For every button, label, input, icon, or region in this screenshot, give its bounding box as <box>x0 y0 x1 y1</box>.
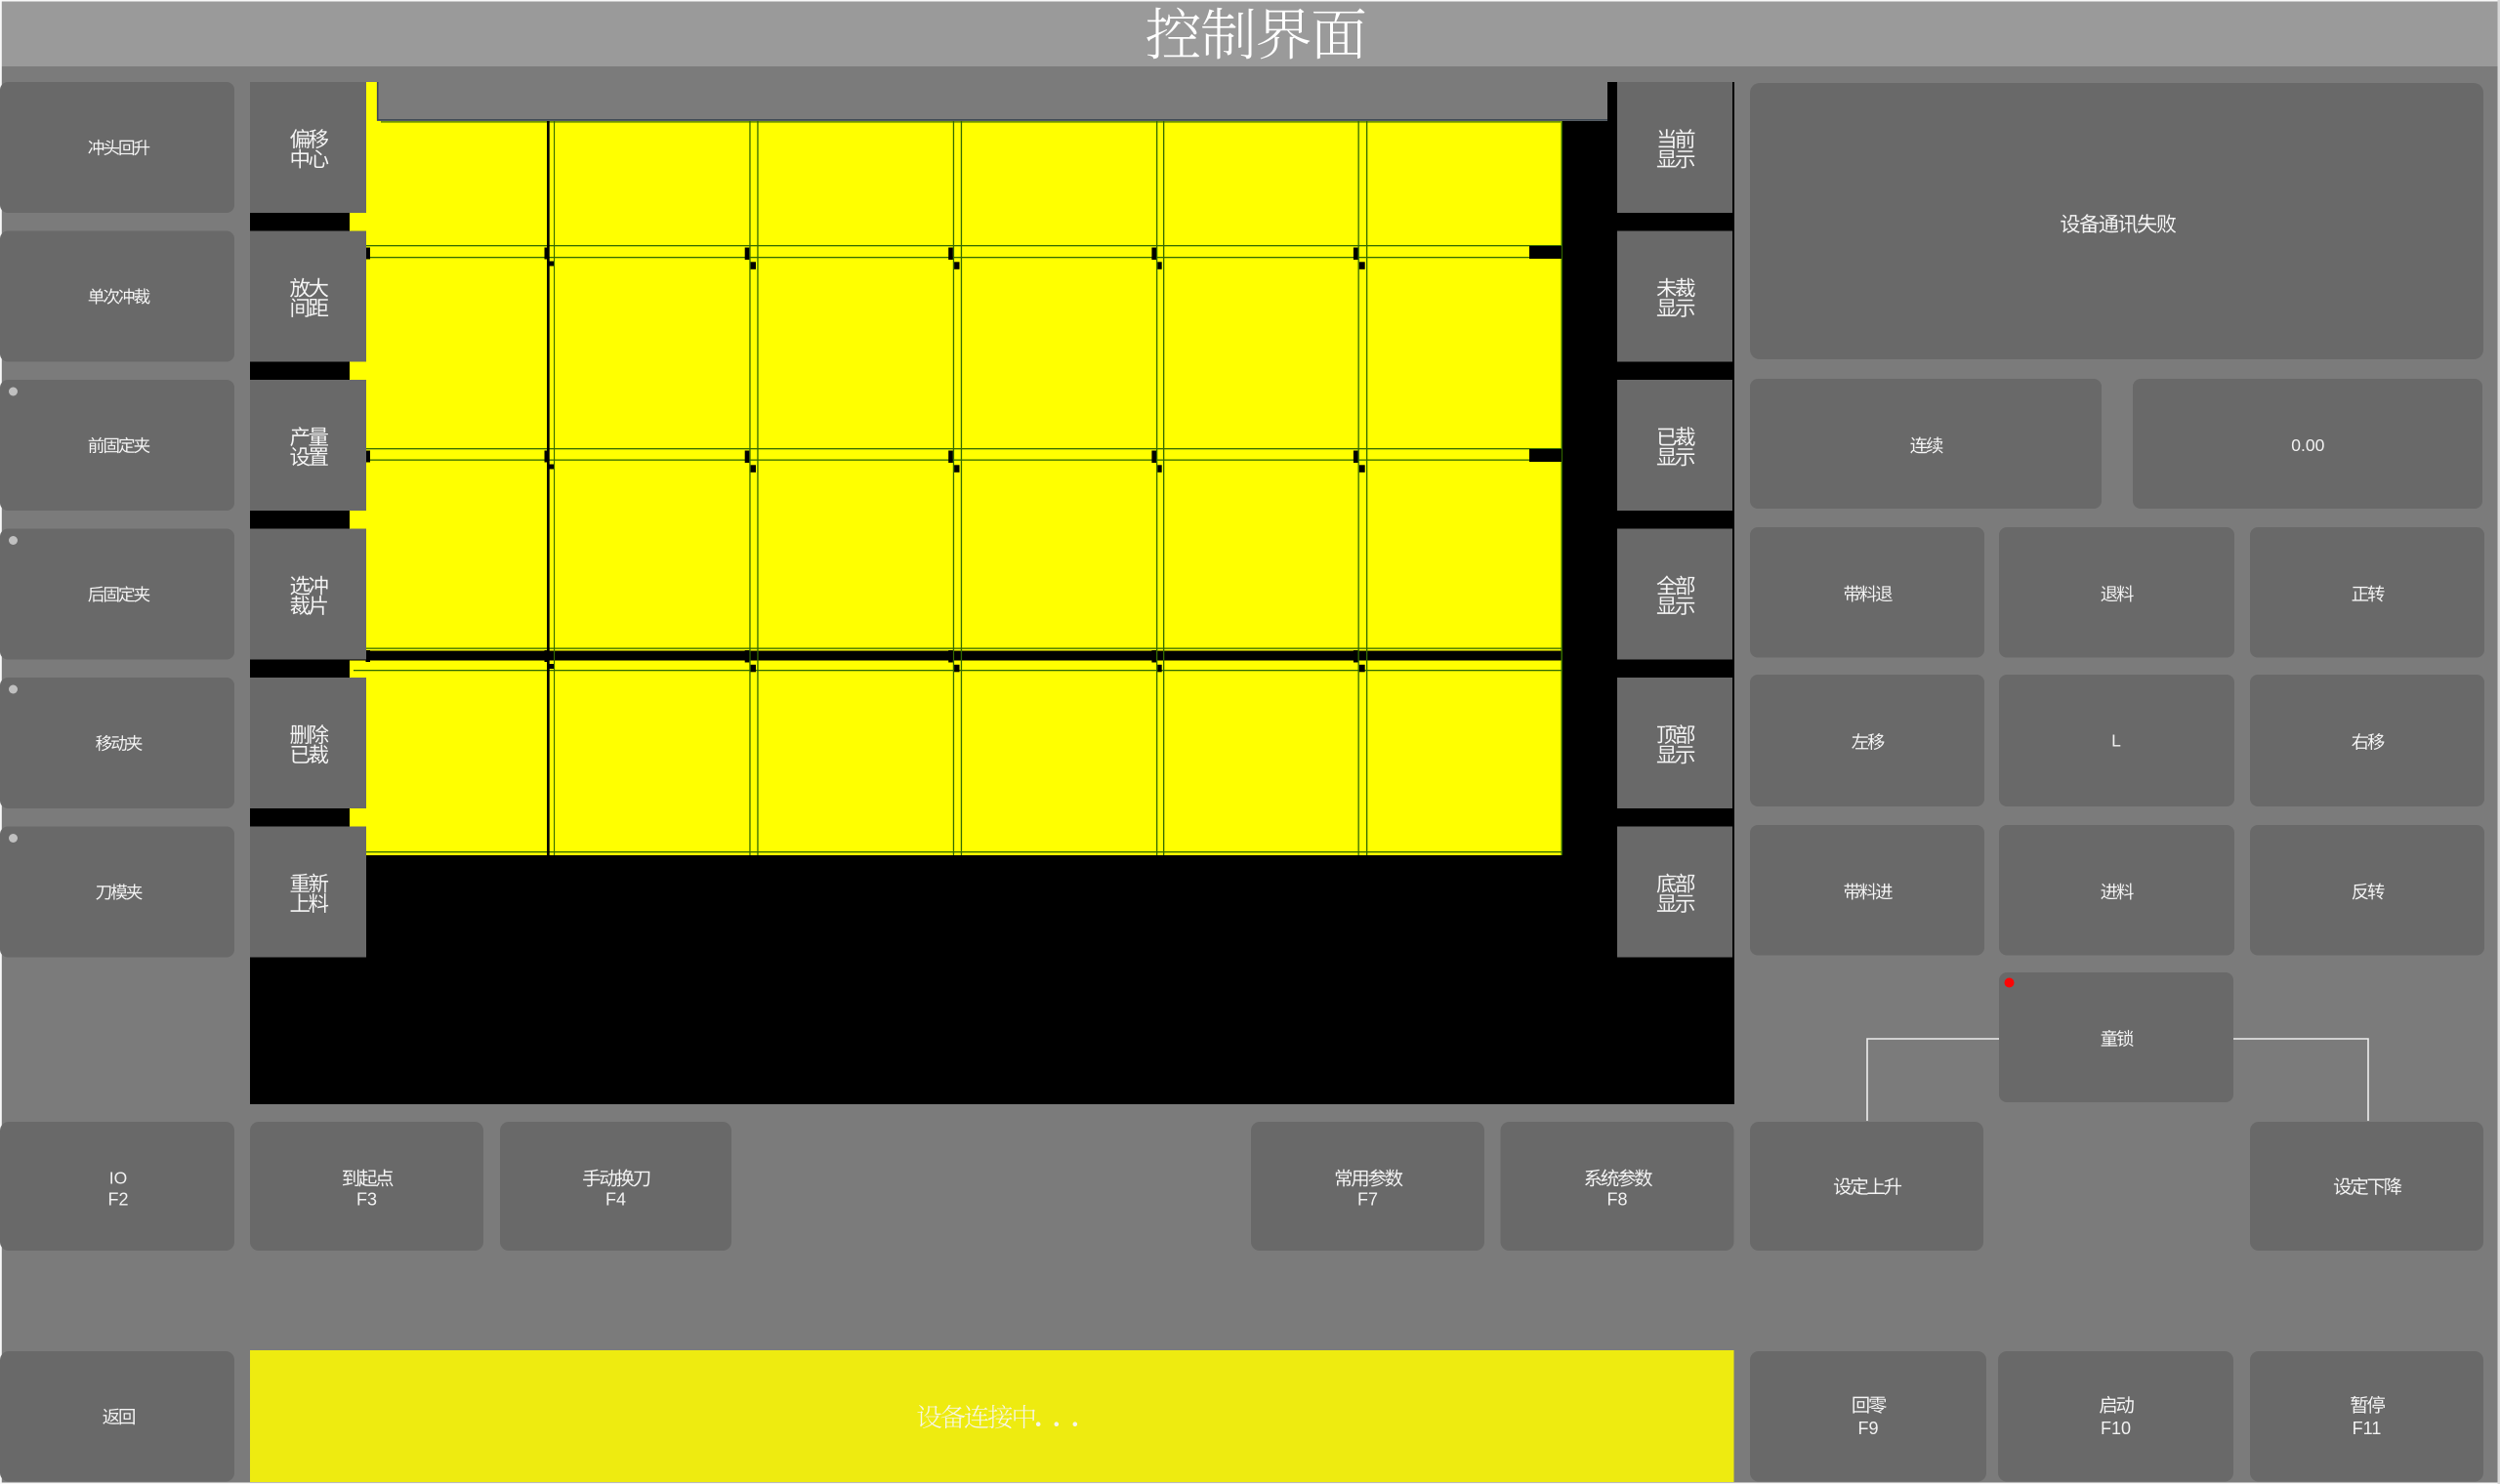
svg-text:F10: F10 <box>2101 1419 2131 1438</box>
svg-text:F3: F3 <box>356 1189 377 1209</box>
svg-text:F8: F8 <box>1606 1189 1627 1209</box>
svg-text:F7: F7 <box>1357 1189 1378 1209</box>
svg-text:F2: F2 <box>107 1189 128 1209</box>
svg-text:F4: F4 <box>605 1189 626 1209</box>
svg-text:F9: F9 <box>1857 1419 1878 1438</box>
svg-text:L: L <box>2111 731 2121 751</box>
svg-text:0.00: 0.00 <box>2291 435 2324 455</box>
svg-text:IO: IO <box>109 1169 127 1188</box>
svg-text:F11: F11 <box>2353 1419 2382 1438</box>
